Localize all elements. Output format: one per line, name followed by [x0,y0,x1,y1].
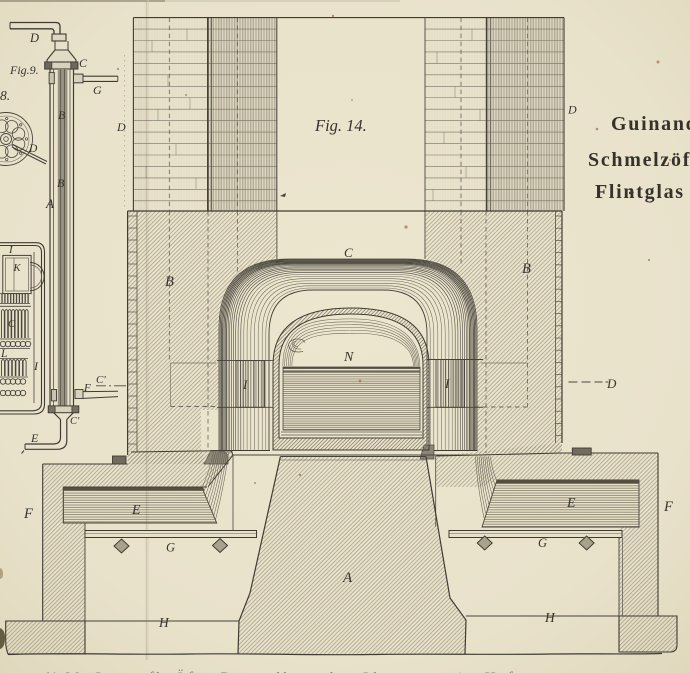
svg-text:H: H [544,610,556,625]
svg-text:F: F [83,382,91,394]
svg-text:Schmelzöfen: Schmelzöfen [588,149,690,171]
svg-text:G: G [93,83,102,97]
svg-text:A: A [342,570,353,586]
svg-text:Guinands: Guinands [611,113,690,135]
svg-text:L: L [0,348,7,360]
svg-text:C: C [344,245,353,260]
svg-text:E: E [566,496,576,511]
svg-text:B: B [57,176,65,190]
svg-text:G: G [538,536,547,550]
svg-text:C: C [8,319,16,330]
svg-text:I: I [242,377,248,392]
svg-text:B: B [165,274,174,290]
svg-text:Flintglas: Flintglas [595,181,685,203]
svg-text:I: I [444,376,450,391]
svg-text:G: G [166,541,175,555]
svg-text:A: A [45,196,54,211]
svg-text:B: B [522,261,531,277]
svg-text:F: F [23,506,33,522]
svg-text:E: E [30,431,39,445]
svg-text:C': C' [70,416,80,427]
svg-text:Fig.9.: Fig.9. [9,63,39,77]
svg-text:Fig. 14.: Fig. 14. [314,116,367,135]
svg-text:D: D [116,120,126,134]
svg-text:¼ W. Gr. zu fl. Öfen Darst: ¼ W. Gr. zu fl. Öfen Darstellung des Gla… [45,669,533,673]
svg-text:C: C [79,56,88,70]
svg-text:D: D [606,376,617,391]
svg-text:8.: 8. [0,88,10,103]
svg-text:H: H [158,615,170,630]
svg-text:D: D [28,143,38,155]
svg-text:N: N [343,350,354,365]
svg-text:F: F [663,499,673,515]
svg-text:K: K [13,263,22,274]
svg-text:D: D [567,103,577,117]
svg-text:D: D [29,31,39,45]
svg-text:C': C' [96,374,106,386]
svg-text:E: E [131,503,141,518]
svg-text:B: B [58,108,66,122]
